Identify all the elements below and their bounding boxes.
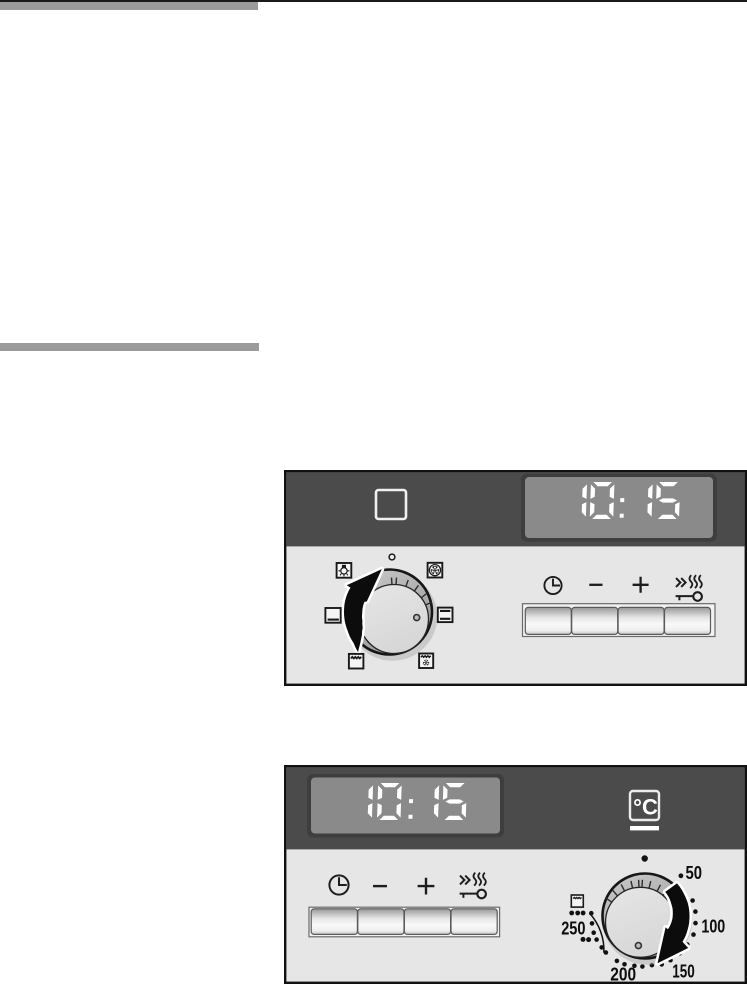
svg-text:150: 150 bbox=[672, 961, 695, 982]
svg-text:100: 100 bbox=[701, 916, 725, 937]
svg-text:50: 50 bbox=[686, 862, 703, 883]
svg-text:250: 250 bbox=[561, 918, 585, 939]
svg-text:°C: °C bbox=[633, 795, 658, 820]
svg-text:200: 200 bbox=[610, 964, 636, 985]
